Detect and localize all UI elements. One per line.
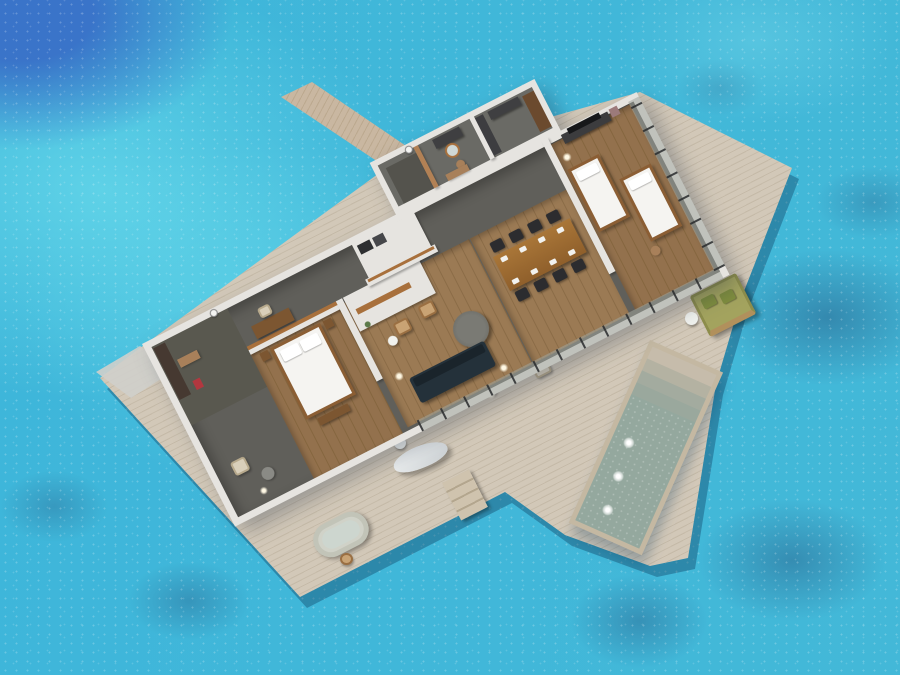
bathtub-stool: [340, 553, 353, 565]
bed-pillow: [299, 332, 322, 352]
daybed-side-table: [685, 312, 698, 325]
overwater-villa-render: [0, 0, 900, 675]
bed-pillow: [279, 342, 302, 362]
bed-pillow: [627, 172, 652, 191]
bathroom-vanity: [487, 97, 521, 120]
daybed-pillow: [719, 288, 736, 304]
entry-vestibule-floor: [386, 153, 434, 204]
daybed-pillow: [700, 293, 717, 309]
bed-pillow: [575, 162, 600, 181]
